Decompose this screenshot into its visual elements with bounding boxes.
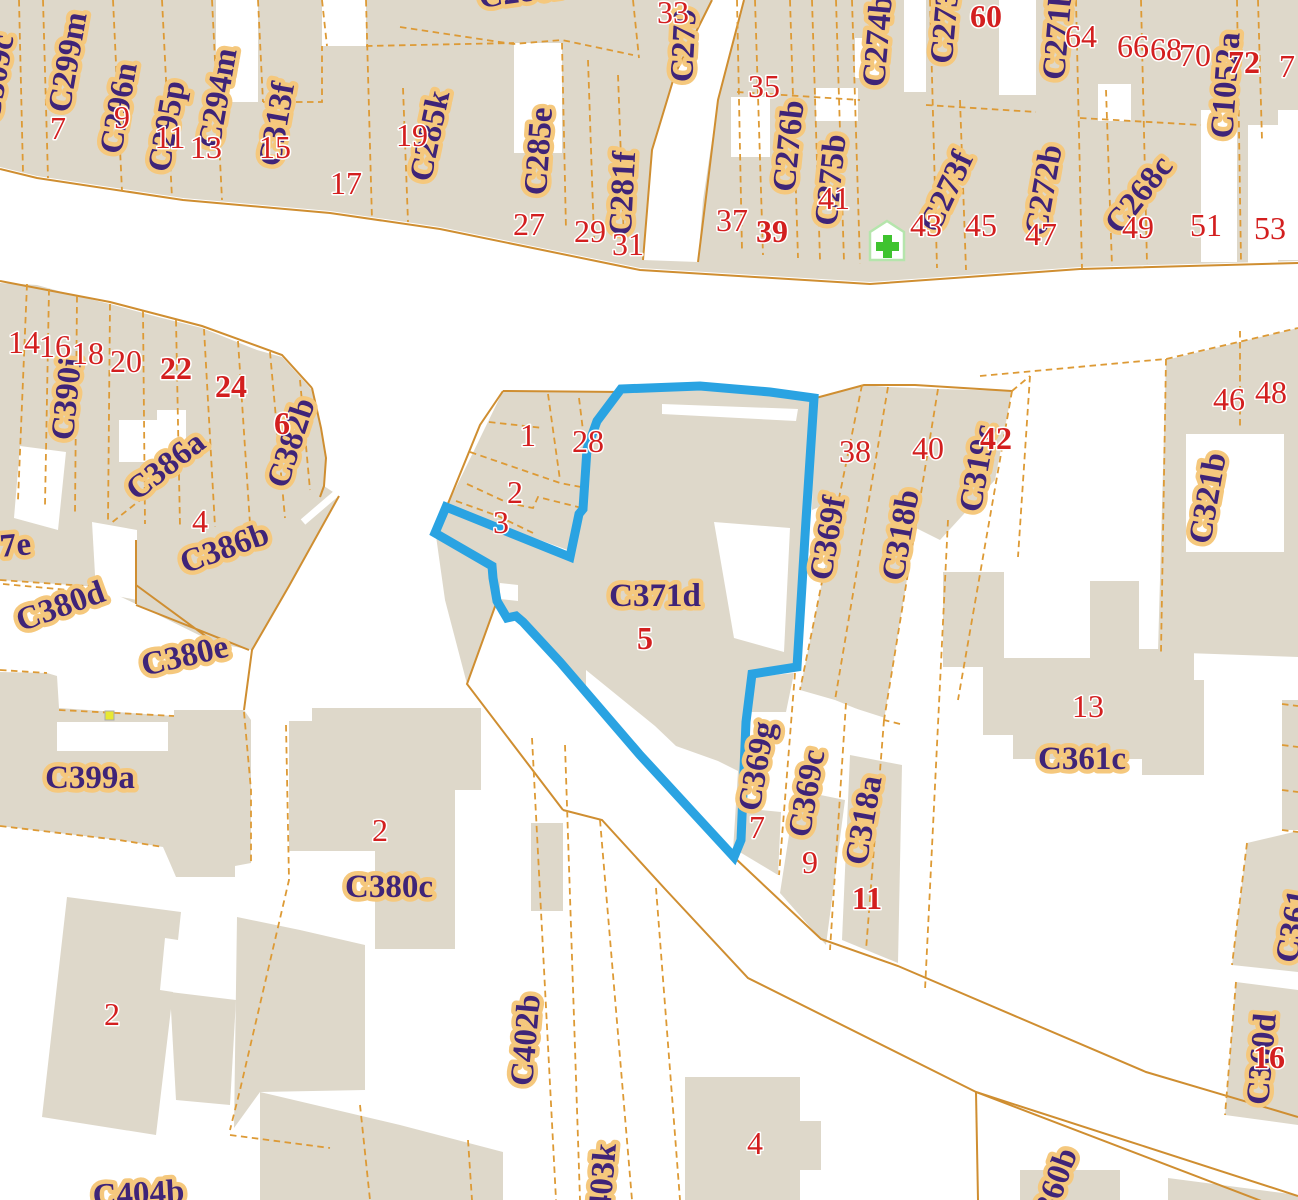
svg-text:31: 31 bbox=[612, 226, 644, 262]
svg-text:3: 3 bbox=[493, 504, 509, 540]
svg-text:C404b: C404b bbox=[92, 1174, 185, 1200]
svg-text:C285e: C285e bbox=[518, 106, 560, 196]
svg-text:11: 11 bbox=[155, 119, 186, 155]
svg-text:9: 9 bbox=[114, 99, 130, 135]
svg-text:7: 7 bbox=[749, 809, 765, 845]
svg-text:35: 35 bbox=[748, 68, 780, 104]
svg-text:C403k: C403k bbox=[580, 1141, 624, 1200]
svg-text:42: 42 bbox=[980, 420, 1012, 456]
svg-text:4: 4 bbox=[747, 1125, 763, 1161]
svg-text:60: 60 bbox=[970, 0, 1002, 34]
svg-text:49: 49 bbox=[1122, 209, 1154, 245]
svg-text:40: 40 bbox=[912, 430, 944, 466]
svg-text:22: 22 bbox=[160, 350, 192, 386]
svg-text:5: 5 bbox=[637, 620, 653, 656]
svg-text:4: 4 bbox=[192, 503, 208, 539]
svg-text:9: 9 bbox=[802, 844, 818, 880]
svg-text:1: 1 bbox=[520, 417, 536, 453]
svg-text:39: 39 bbox=[756, 213, 788, 249]
svg-text:15: 15 bbox=[259, 129, 291, 165]
svg-text:46: 46 bbox=[1213, 381, 1245, 417]
svg-text:C399a: C399a bbox=[45, 760, 135, 796]
svg-text:C281f: C281f bbox=[603, 149, 643, 236]
svg-text:43: 43 bbox=[910, 207, 942, 243]
svg-text:C361c: C361c bbox=[1038, 741, 1126, 777]
svg-text:64: 64 bbox=[1065, 18, 1097, 54]
svg-text:33: 33 bbox=[657, 0, 689, 30]
svg-text:2: 2 bbox=[104, 996, 120, 1032]
svg-text:48: 48 bbox=[1255, 374, 1287, 410]
svg-text:C273: C273 bbox=[924, 0, 966, 65]
svg-text:C371d: C371d bbox=[609, 578, 701, 614]
svg-text:14: 14 bbox=[8, 324, 40, 360]
svg-text:24: 24 bbox=[215, 368, 247, 404]
svg-text:6: 6 bbox=[274, 405, 290, 441]
svg-text:38: 38 bbox=[839, 433, 871, 469]
svg-text:68: 68 bbox=[1150, 31, 1182, 67]
svg-text:45: 45 bbox=[965, 207, 997, 243]
svg-text:70: 70 bbox=[1179, 37, 1211, 73]
svg-text:51: 51 bbox=[1190, 207, 1222, 243]
svg-text:16: 16 bbox=[1253, 1039, 1285, 1075]
svg-text:28: 28 bbox=[572, 423, 604, 459]
svg-text:16: 16 bbox=[39, 328, 71, 364]
svg-text:53: 53 bbox=[1254, 210, 1286, 246]
svg-text:13: 13 bbox=[190, 129, 222, 165]
svg-text:37: 37 bbox=[716, 202, 748, 238]
svg-text:C380c: C380c bbox=[345, 869, 433, 905]
svg-text:20: 20 bbox=[110, 343, 142, 379]
svg-text:17: 17 bbox=[330, 165, 362, 201]
svg-text:66: 66 bbox=[1117, 28, 1149, 64]
svg-text:47: 47 bbox=[1025, 216, 1057, 252]
svg-text:7: 7 bbox=[50, 110, 66, 146]
svg-text:7: 7 bbox=[1279, 48, 1295, 84]
svg-text:18: 18 bbox=[72, 335, 104, 371]
svg-text:2: 2 bbox=[507, 474, 523, 510]
svg-text:11: 11 bbox=[852, 880, 882, 916]
svg-text:27: 27 bbox=[513, 206, 545, 242]
svg-text:41: 41 bbox=[818, 180, 850, 216]
svg-text:19: 19 bbox=[396, 117, 428, 153]
svg-text:29: 29 bbox=[574, 213, 606, 249]
svg-text:13: 13 bbox=[1072, 688, 1104, 724]
svg-text:72: 72 bbox=[1228, 44, 1260, 80]
svg-text:2: 2 bbox=[372, 812, 388, 848]
